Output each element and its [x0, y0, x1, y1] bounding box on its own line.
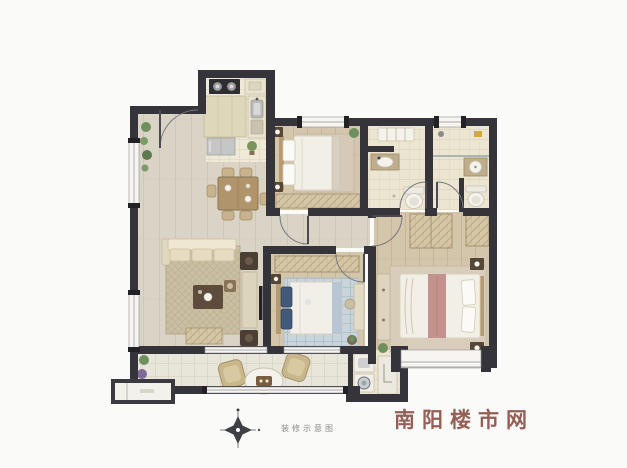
sofa-cushion: [214, 249, 234, 261]
plant: [247, 141, 257, 151]
plant: [349, 128, 359, 138]
tray: [256, 376, 272, 386]
floor-plan-page: 装修示意图 南阳楼市网: [0, 0, 627, 468]
planter-box: [113, 381, 173, 402]
desk: [354, 284, 364, 330]
pillow: [461, 280, 476, 306]
sofa-cushion: [170, 249, 190, 261]
wardrobe: [276, 194, 360, 208]
tv-console: [242, 272, 257, 328]
floor-hallway: [266, 214, 370, 248]
bedroom-3: [271, 256, 364, 346]
pillow: [461, 307, 476, 333]
flowers: [137, 369, 147, 379]
watermark: 南阳楼市网: [394, 404, 534, 434]
towel: [474, 131, 482, 137]
kitchen-island: [204, 96, 246, 137]
bay-window: [401, 350, 481, 368]
sofa-back: [168, 239, 236, 250]
floor-plan-drawing: [0, 0, 627, 468]
compass-caption: 装修示意图: [281, 423, 336, 434]
pillow: [283, 164, 295, 185]
headboard: [276, 282, 281, 334]
dressing-area: [410, 214, 489, 248]
dining-chair: [222, 211, 234, 220]
bed-throw: [332, 282, 342, 334]
shower-head: [438, 131, 444, 137]
dining-chair: [240, 211, 252, 220]
dining-chair: [207, 185, 216, 197]
tv: [259, 286, 263, 320]
desk-chair: [345, 299, 355, 309]
sofa-cushion: [192, 249, 212, 261]
wardrobe: [466, 214, 489, 246]
wardrobe: [275, 256, 359, 272]
pillow: [281, 287, 292, 307]
dining-chair: [240, 168, 252, 177]
compass-rose-icon: [220, 409, 260, 449]
ottoman: [186, 328, 222, 344]
pillow: [283, 140, 295, 161]
dining-chair: [222, 168, 234, 177]
plant: [141, 122, 151, 132]
toilet-tank: [466, 186, 486, 192]
pillow: [281, 309, 292, 329]
plant: [378, 343, 388, 353]
dresser: [377, 274, 390, 340]
